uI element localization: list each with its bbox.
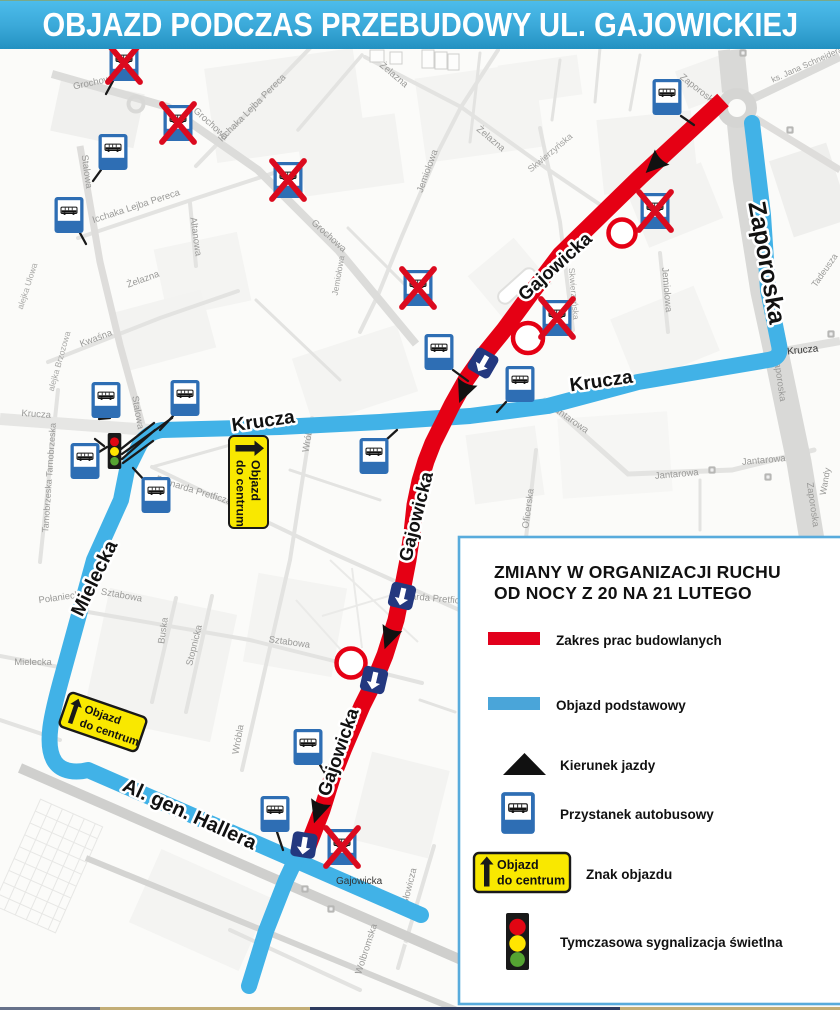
- svg-text:Krucza: Krucza: [21, 408, 52, 421]
- svg-text:Zakres prac budowlanych: Zakres prac budowlanych: [556, 633, 722, 648]
- svg-text:Tymczasowa sygnalizacja świetl: Tymczasowa sygnalizacja świetlna: [560, 935, 783, 950]
- svg-text:ZMIANY W ORGANIZACJI RUCHU: ZMIANY W ORGANIZACJI RUCHU: [494, 562, 781, 582]
- svg-text:Objazd: Objazd: [249, 460, 263, 501]
- svg-text:Mielecka: Mielecka: [14, 657, 52, 668]
- svg-text:Objazd podstawowy: Objazd podstawowy: [556, 698, 686, 713]
- svg-text:Znak objazdu: Znak objazdu: [586, 867, 672, 882]
- svg-text:do centrum: do centrum: [497, 874, 565, 888]
- svg-text:OD NOCY Z 20 NA 21 LUTEGO: OD NOCY Z 20 NA 21 LUTEGO: [494, 583, 752, 603]
- svg-text:Przystanek autobusowy: Przystanek autobusowy: [560, 807, 714, 822]
- svg-text:do centrum: do centrum: [234, 460, 248, 527]
- svg-text:Gajowicka: Gajowicka: [336, 876, 383, 887]
- svg-text:Objazd: Objazd: [497, 858, 539, 872]
- svg-text:Kierunek jazdy: Kierunek jazdy: [560, 758, 656, 773]
